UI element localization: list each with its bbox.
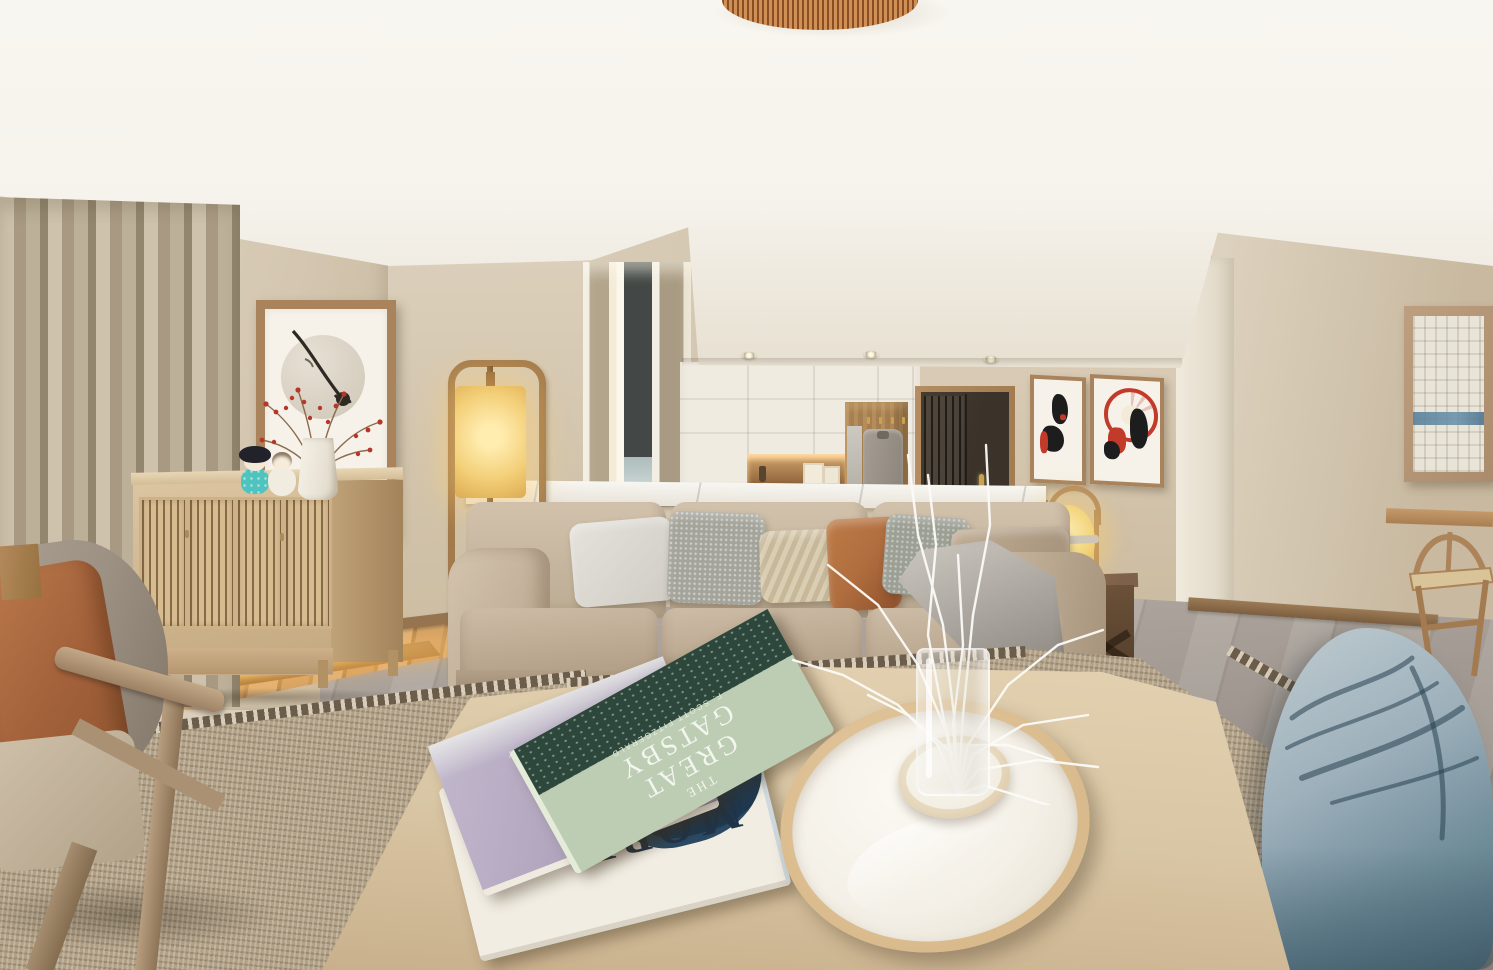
sideboard-slat-door <box>187 497 236 629</box>
floor-lamp-shade <box>455 386 526 498</box>
door-knob <box>185 530 189 538</box>
floor-lamp-hanger <box>486 372 495 387</box>
blue-stripe <box>1413 412 1484 425</box>
beanbag-base <box>1262 847 1493 970</box>
cornice-shadow <box>682 358 1182 366</box>
sideboard-leg <box>318 660 328 688</box>
pillow-speckled-gray <box>666 510 765 605</box>
window <box>583 262 691 507</box>
wood-ledge <box>0 544 42 601</box>
living-room-render: MOBY Herman Melville THE OLD MAN S ERNES… <box>0 0 1493 970</box>
cabinet-seam <box>680 398 920 400</box>
sideboard-slat-door <box>283 497 332 629</box>
recessed-spotlight <box>864 351 878 358</box>
glass-highlight <box>926 658 932 778</box>
pillow-light-gray <box>569 516 678 609</box>
glass-cylinder-vase <box>916 648 990 796</box>
blue-bean-bag <box>1262 628 1493 970</box>
textured-wall-art <box>1404 306 1493 482</box>
sideboard-leg <box>388 650 398 676</box>
sideboard-slat-door <box>235 497 284 629</box>
door-knob <box>280 533 284 541</box>
white-vase <box>297 438 339 500</box>
plaster-relief <box>1413 316 1484 472</box>
kitchen-ceiling <box>688 226 1218 368</box>
sideboard-side <box>331 480 403 662</box>
